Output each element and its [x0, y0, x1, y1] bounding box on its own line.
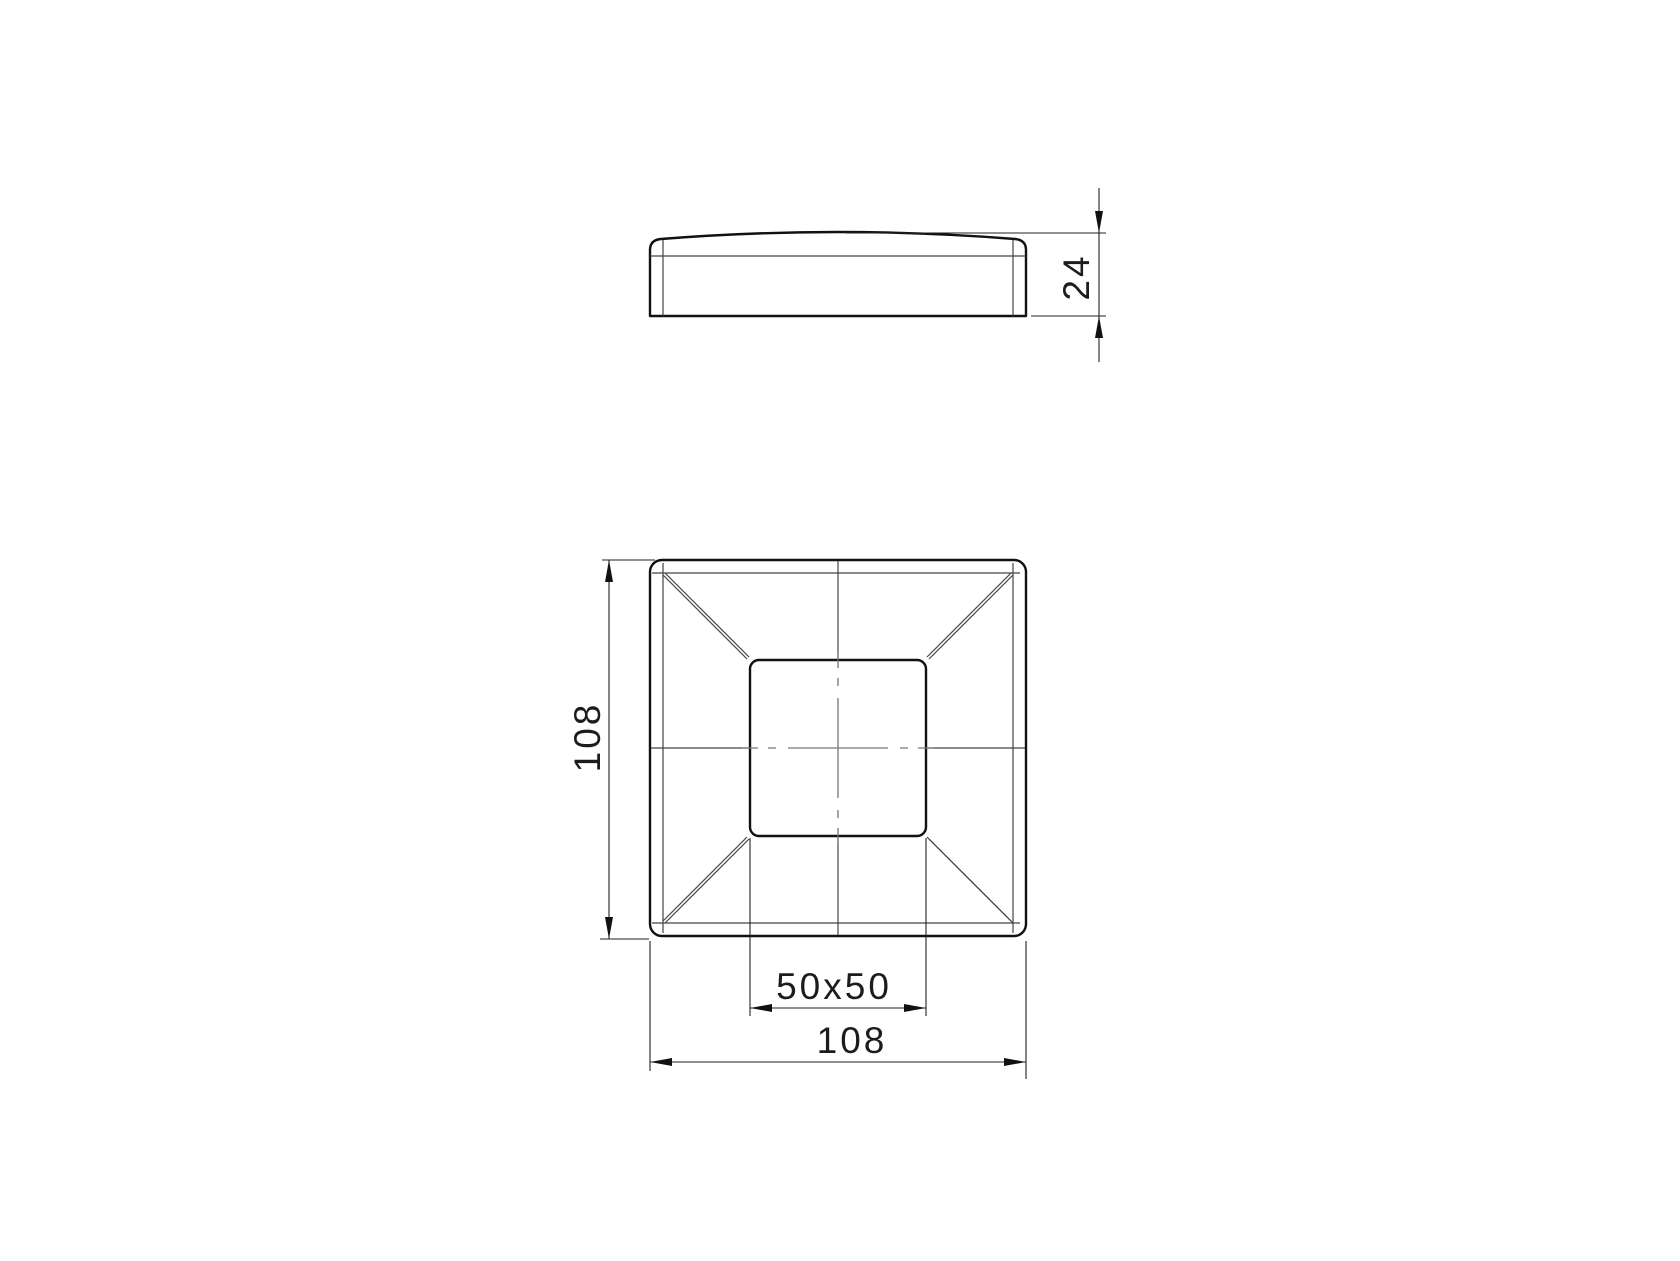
fold-diagonal-bottom-right	[927, 837, 1013, 923]
dim-post-opening-label: 50x50	[776, 966, 892, 1007]
arrow-up-icon	[1095, 316, 1103, 338]
arrow-right-icon	[904, 1004, 926, 1012]
fold-diagonal-top-left	[663, 573, 749, 659]
dim-outer-size-left-label: 108	[567, 702, 608, 773]
dim-cap-height: 24	[846, 188, 1106, 362]
drawing-canvas: 24	[0, 0, 1680, 1261]
dim-cap-height-label: 24	[1056, 253, 1097, 300]
dim-outer-size-left: 108	[567, 560, 655, 939]
fold-diagonal-bottom-left	[663, 837, 749, 923]
side-view	[650, 232, 1026, 316]
technical-drawing: 24	[0, 0, 1680, 1261]
arrow-left-icon	[650, 1058, 672, 1066]
side-view-outline	[650, 232, 1026, 316]
fold-diagonal-top-right	[927, 573, 1013, 659]
arrow-left-icon	[750, 1004, 772, 1012]
arrow-down-icon	[1095, 211, 1103, 233]
arrow-up-icon	[605, 560, 613, 582]
arrow-down-icon	[605, 917, 613, 939]
dim-outer-size-bottom-label: 108	[817, 1020, 888, 1061]
top-view	[650, 560, 1026, 936]
arrow-right-icon	[1004, 1058, 1026, 1066]
dim-outer-size-bottom: 108	[650, 941, 1026, 1079]
